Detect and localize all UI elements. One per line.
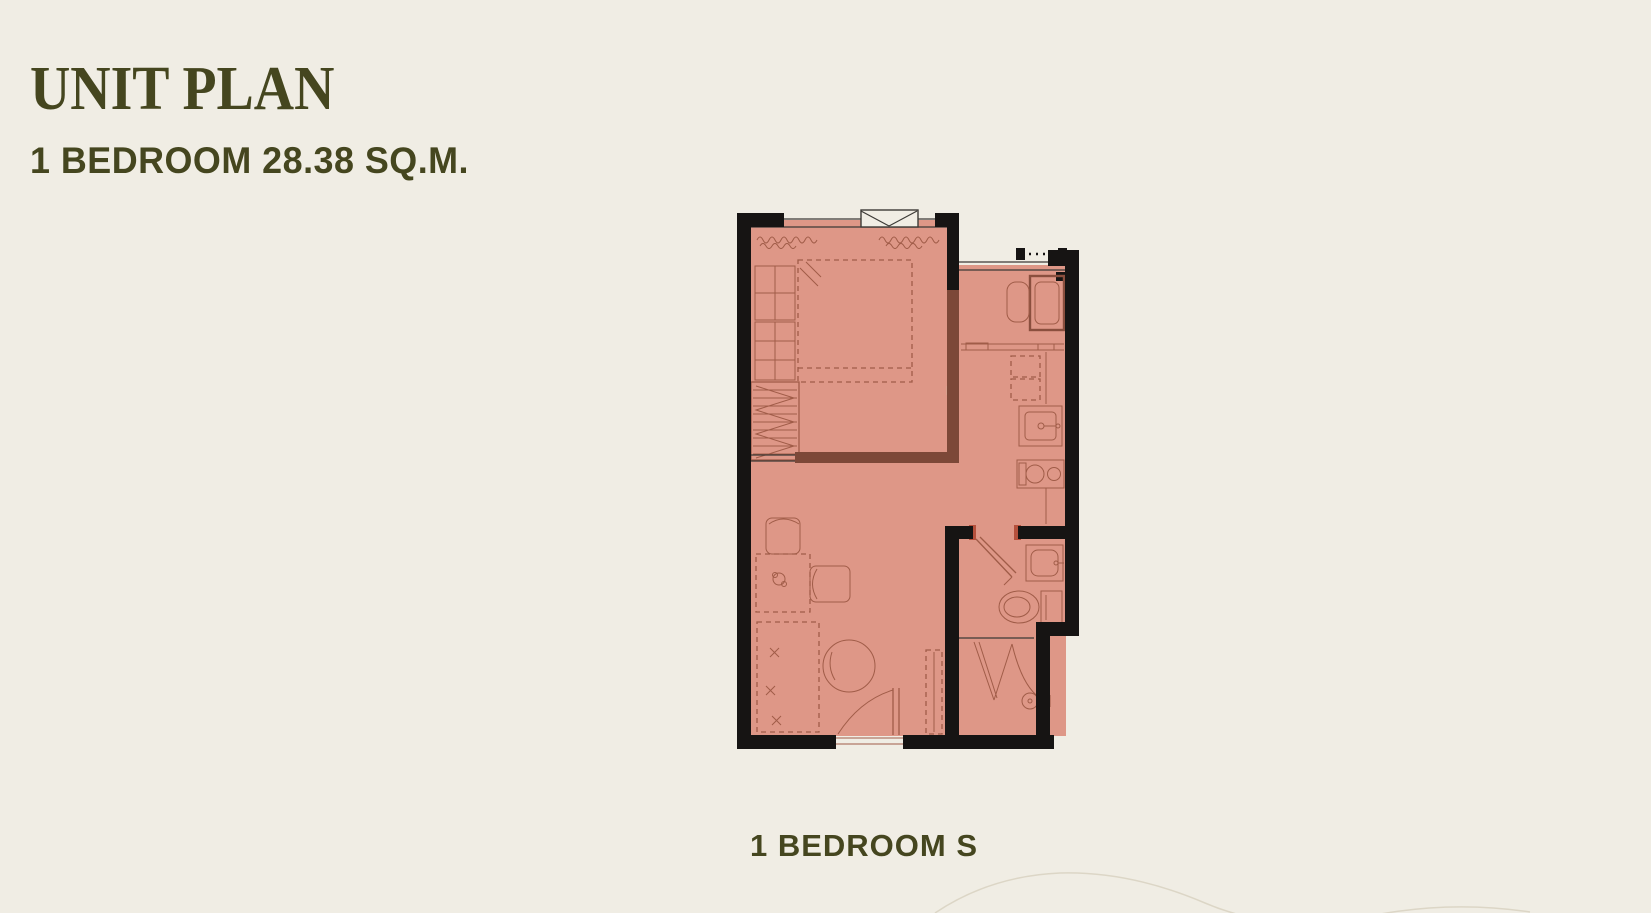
header: UNIT PLAN 1 BEDROOM 28.38 SQ.M. <box>30 58 483 182</box>
page-subtitle: 1 BEDROOM 28.38 SQ.M. <box>30 140 469 182</box>
floor-plan-drawing <box>660 180 1100 780</box>
page-title: UNIT PLAN <box>30 58 437 120</box>
casement-window-icon <box>861 210 918 227</box>
decorative-contour <box>0 830 1651 913</box>
unit-plan-page: UNIT PLAN 1 BEDROOM 28.38 SQ.M. <box>0 0 1651 913</box>
floor-plan <box>660 180 1100 780</box>
